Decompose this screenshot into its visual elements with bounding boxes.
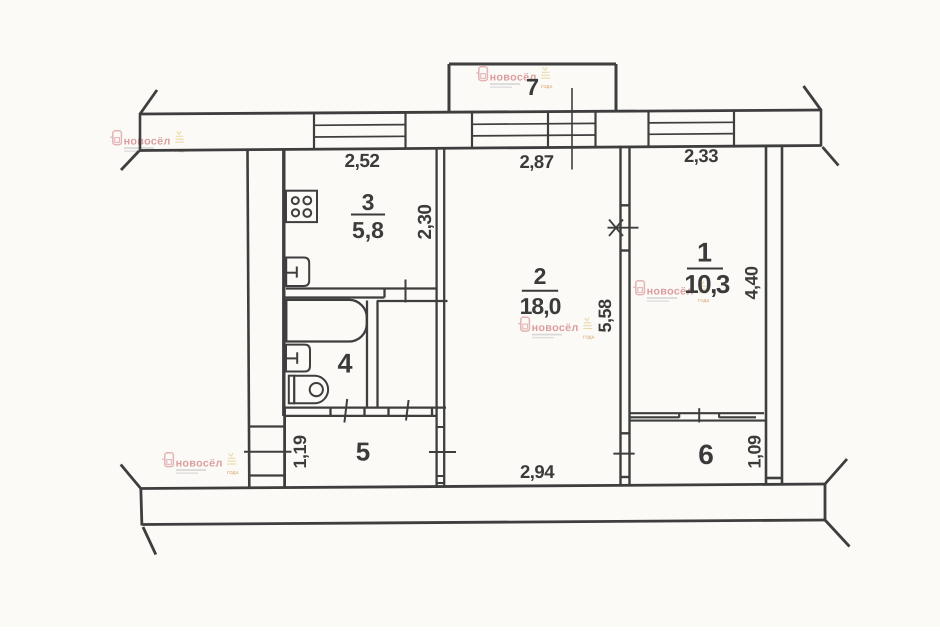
svg-text:1: 1	[697, 238, 712, 268]
svg-text:5: 5	[356, 437, 370, 467]
svg-text:18,0: 18,0	[520, 293, 561, 319]
svg-text:2,52: 2,52	[345, 151, 380, 172]
svg-text:2,30: 2,30	[415, 205, 436, 240]
svg-text:4: 4	[337, 349, 352, 379]
svg-text:7: 7	[526, 74, 539, 100]
svg-text:3: 3	[362, 189, 375, 215]
svg-text:1,19: 1,19	[290, 435, 310, 469]
svg-text:5,58: 5,58	[595, 299, 615, 333]
svg-text:4,40: 4,40	[742, 266, 762, 300]
svg-text:2,33: 2,33	[684, 145, 718, 166]
svg-text:10,3: 10,3	[684, 269, 730, 299]
svg-text:6: 6	[698, 439, 714, 470]
svg-text:2,87: 2,87	[519, 151, 553, 172]
svg-text:1,09: 1,09	[745, 435, 765, 469]
svg-text:5,8: 5,8	[352, 217, 384, 243]
svg-text:2: 2	[534, 263, 547, 289]
svg-text:2,94: 2,94	[520, 461, 555, 482]
